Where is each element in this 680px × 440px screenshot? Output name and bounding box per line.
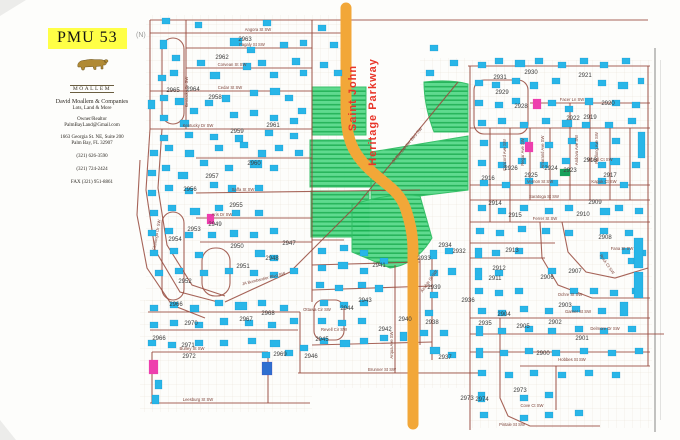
house-marker — [280, 42, 288, 48]
house-marker — [290, 133, 298, 139]
area-number-label: 2972 — [182, 354, 196, 360]
pink-house-marker — [149, 360, 158, 374]
house-marker — [580, 58, 588, 64]
house-marker — [450, 60, 458, 66]
house-marker — [520, 306, 528, 312]
street-label: Ochre St SW — [558, 292, 582, 297]
house-marker — [270, 72, 278, 78]
street-label: Ottawa Cir SW — [303, 307, 331, 312]
house-marker — [515, 288, 523, 294]
house-marker — [478, 62, 486, 68]
house-marker — [268, 322, 276, 328]
house-marker — [565, 106, 573, 112]
house-marker — [168, 342, 176, 348]
street-address: 1663 Georgia St. NE, Suite 200 — [36, 135, 148, 140]
house-marker — [168, 205, 176, 211]
house-marker — [247, 47, 255, 53]
house-marker — [190, 108, 198, 114]
area-number-label: 2935 — [478, 321, 492, 327]
house-marker — [150, 322, 158, 328]
house-marker — [210, 134, 218, 140]
area-number-label: 2953 — [187, 227, 201, 233]
house-marker — [475, 288, 483, 294]
house-marker — [300, 70, 307, 76]
area-number-label: 2925 — [524, 173, 538, 179]
email-address: PalmBayLand@Gmail.com — [36, 123, 148, 128]
pink-house-marker — [533, 99, 541, 109]
house-marker — [542, 118, 550, 124]
house-marker — [380, 335, 388, 341]
house-marker — [318, 265, 326, 271]
house-marker — [492, 82, 500, 88]
house-marker — [338, 320, 346, 326]
house-marker — [235, 135, 243, 142]
house-marker — [250, 232, 258, 238]
house-marker — [358, 282, 366, 288]
area-number-label: 2969 — [273, 352, 287, 358]
house-marker — [512, 78, 520, 84]
street-label: Ferrer St SW — [533, 216, 557, 221]
house-marker — [430, 347, 440, 354]
area-number-label: 2944 — [340, 306, 354, 312]
city-state-zip: Palm Bay, FL 32907 — [36, 141, 148, 146]
street-label: Saffa St SW — [232, 187, 255, 192]
area-number-label: 2957 — [205, 174, 219, 180]
area-number-label: 2964 — [186, 87, 200, 93]
area-number-label: 2937 — [438, 355, 452, 361]
house-marker — [148, 100, 155, 109]
area-number-label: 2942 — [378, 327, 392, 333]
house-marker — [498, 118, 506, 124]
house-marker — [622, 58, 630, 64]
street-label: Aris Dr SW — [212, 212, 233, 217]
area-number-label: 2971 — [181, 343, 195, 349]
street-label: Kentucky Dr SW — [183, 123, 214, 128]
area-number-label: 2917 — [603, 173, 617, 179]
house-marker — [638, 78, 644, 84]
house-marker — [215, 145, 223, 151]
area-number-label: 2900 — [536, 351, 550, 357]
pmu-label: PMU 53 — [48, 28, 127, 49]
house-marker — [628, 118, 636, 124]
house-marker — [318, 318, 326, 324]
parcel-grid — [146, 15, 312, 305]
street-label: Andova Ave SW — [574, 135, 579, 165]
house-marker — [170, 248, 178, 254]
area-number-label: 2932 — [452, 249, 466, 255]
house-marker — [170, 70, 178, 76]
house-marker — [285, 95, 293, 101]
house-marker — [165, 185, 173, 191]
house-marker — [232, 210, 240, 216]
area-number-label: 2901 — [575, 336, 589, 342]
house-marker — [170, 320, 178, 326]
house-marker — [475, 248, 482, 258]
house-marker — [150, 250, 158, 256]
house-marker — [515, 60, 525, 67]
green-highlight-zone — [371, 136, 468, 202]
house-marker — [475, 80, 483, 86]
house-marker — [498, 328, 506, 334]
street-label: Hobbes St SW — [558, 357, 586, 362]
street-label: Pintale St SW — [499, 422, 525, 427]
house-marker — [565, 230, 573, 236]
area-number-label: 2947 — [282, 241, 296, 247]
area-number-label: 2930 — [524, 70, 538, 76]
house-marker — [448, 268, 456, 275]
house-marker — [628, 326, 636, 332]
house-marker — [600, 62, 608, 68]
house-marker — [210, 72, 220, 79]
house-marker — [498, 208, 506, 214]
house-marker — [476, 228, 484, 234]
street-label: Garner St SW — [565, 309, 591, 314]
area-number-label: 2916 — [481, 176, 495, 182]
house-marker — [548, 100, 556, 106]
area-number-label: 2965 — [166, 88, 180, 94]
house-marker — [195, 252, 203, 258]
house-marker — [160, 95, 168, 101]
house-marker — [495, 102, 503, 108]
house-marker — [258, 150, 266, 157]
area-number-label: 2949 — [208, 222, 222, 228]
house-marker — [295, 150, 303, 156]
north-mark: (N) — [136, 32, 146, 39]
house-marker — [530, 370, 538, 376]
street-label: Amarand Ave SW — [540, 135, 545, 168]
house-marker — [625, 230, 633, 236]
area-number-label: 2902 — [548, 320, 562, 326]
street-label: Delmore Dr SW — [590, 326, 619, 331]
area-number-label: 2945 — [315, 337, 329, 343]
area-number-label: 2973 — [513, 388, 527, 394]
house-marker — [360, 338, 368, 344]
house-marker — [575, 410, 583, 416]
house-marker — [178, 172, 188, 179]
house-marker — [250, 110, 258, 116]
house-marker — [200, 160, 208, 166]
house-marker — [220, 340, 228, 346]
house-marker — [478, 205, 486, 211]
house-marker — [300, 345, 308, 351]
house-marker — [605, 122, 613, 128]
street-label: Brunner St SW — [368, 367, 396, 372]
house-marker — [632, 102, 640, 108]
area-number-label: 2934 — [438, 243, 452, 249]
house-marker — [476, 326, 483, 336]
area-number-label: 2967 — [239, 317, 253, 323]
street-label: Cove Ct SW — [520, 403, 543, 408]
phone-number-1: (321) 626-3590 — [36, 154, 148, 159]
house-marker — [545, 142, 553, 148]
street-label: Kapok Ct SW — [591, 179, 616, 184]
house-marker — [340, 340, 350, 347]
street-label: Corvean St SW — [218, 62, 247, 67]
area-number-label: 2941 — [372, 263, 386, 269]
house-marker — [535, 58, 543, 64]
logo-wordmark: MOALLEM — [70, 85, 114, 93]
house-marker — [520, 395, 528, 401]
house-marker — [360, 250, 368, 256]
house-marker — [375, 285, 383, 292]
house-marker — [292, 58, 300, 65]
parkway-name-label: Heritage Parkway — [367, 58, 379, 166]
house-marker — [255, 210, 263, 216]
area-number-label: 2958 — [208, 95, 222, 101]
house-marker — [475, 100, 483, 106]
house-marker — [502, 182, 510, 188]
house-marker — [478, 370, 486, 376]
house-marker — [495, 58, 503, 64]
area-number-label: 2950 — [230, 244, 244, 250]
area-number-label: 2924 — [544, 166, 558, 172]
house-marker — [612, 372, 620, 378]
house-marker — [290, 318, 298, 324]
house-marker — [155, 270, 163, 276]
house-marker — [270, 165, 278, 171]
area-number-label: 2960 — [247, 161, 261, 167]
house-marker — [600, 208, 610, 215]
house-marker — [632, 162, 640, 168]
area-number-label: 2926 — [504, 166, 518, 172]
house-marker — [290, 268, 298, 274]
area-number-label: 2973 — [460, 396, 474, 402]
house-marker — [548, 328, 556, 334]
house-marker — [210, 182, 218, 188]
house-marker — [162, 18, 170, 24]
house-marker — [478, 160, 486, 166]
area-number-label: 2940 — [398, 317, 412, 323]
house-marker — [262, 352, 270, 358]
company-name: David Moallem & Companies — [36, 99, 148, 105]
house-marker — [360, 268, 368, 274]
house-marker — [150, 150, 158, 156]
house-marker — [475, 268, 482, 280]
house-marker — [558, 372, 566, 378]
area-number-label: 2951 — [236, 264, 250, 270]
lion-icon — [72, 56, 112, 72]
house-marker — [545, 392, 553, 398]
area-number-label: 2910 — [576, 212, 590, 218]
area-number-label: 2956 — [183, 187, 197, 193]
street-label: Arqua Ave SW — [389, 331, 394, 358]
phone-number-2: (321) 724-2424 — [36, 167, 148, 172]
house-marker — [195, 22, 202, 28]
house-marker — [338, 262, 348, 269]
area-number-label: 2968 — [261, 311, 275, 317]
area-number-label: 2913 — [505, 248, 519, 254]
house-marker — [230, 112, 238, 118]
area-number-label: 2936 — [461, 298, 475, 304]
area-number-label: 2961 — [266, 123, 280, 129]
area-number-label: 2938 — [425, 320, 439, 326]
house-marker — [185, 150, 194, 157]
area-number-label: 2954 — [168, 237, 182, 243]
house-marker — [160, 115, 168, 121]
house-marker — [230, 230, 238, 237]
area-number-label: 2970 — [184, 321, 198, 327]
house-marker — [430, 292, 438, 298]
area-number-label: 2923 — [563, 168, 577, 174]
house-marker — [496, 230, 504, 236]
house-marker — [358, 318, 366, 324]
house-marker — [248, 338, 256, 344]
house-marker — [634, 272, 643, 298]
house-marker — [525, 348, 533, 354]
house-marker — [552, 78, 560, 84]
house-marker — [298, 108, 306, 114]
house-marker — [240, 142, 248, 148]
area-number-label: 2959 — [230, 129, 244, 135]
house-marker — [148, 170, 156, 176]
house-marker — [585, 98, 593, 105]
house-marker — [300, 40, 307, 46]
house-marker — [598, 162, 606, 168]
house-marker — [150, 210, 158, 216]
house-marker — [585, 370, 593, 376]
house-marker — [562, 158, 570, 164]
house-marker — [275, 145, 283, 151]
house-marker — [545, 412, 553, 418]
scanned-parcel-map-page: Angora St SWFagaly St SWCorvean St SWCed… — [0, 0, 680, 440]
house-marker — [258, 60, 266, 66]
house-marker — [476, 348, 483, 358]
purple-house-marker — [262, 362, 272, 375]
area-number-label: 2966 — [169, 302, 183, 308]
house-marker — [635, 348, 643, 354]
house-marker — [255, 185, 263, 191]
house-marker — [620, 302, 628, 316]
area-number-label: 2903 — [558, 303, 572, 309]
moallem-logo: MOALLEM — [36, 56, 148, 95]
area-number-label: 2931 — [493, 75, 507, 81]
realtor-info-panel: PMU 53 (N) MOALLEM David Moallem & Compa… — [36, 28, 148, 185]
house-marker — [270, 88, 280, 95]
street-label: Fana St SW — [611, 246, 634, 251]
house-marker — [235, 302, 247, 310]
house-marker — [425, 310, 433, 316]
house-marker — [270, 228, 278, 234]
house-marker — [430, 250, 437, 259]
house-marker — [518, 226, 526, 232]
house-marker — [316, 282, 324, 288]
house-marker — [175, 268, 183, 274]
company-tagline: Lots, Land & More — [36, 106, 148, 111]
house-marker — [545, 308, 553, 314]
house-marker — [440, 330, 448, 336]
area-number-label: 2943 — [358, 298, 372, 304]
house-marker — [320, 300, 328, 306]
house-marker — [185, 132, 193, 138]
house-marker — [400, 332, 407, 341]
house-marker — [480, 412, 488, 418]
area-number-label: 2912 — [492, 266, 506, 272]
house-marker — [222, 95, 230, 102]
house-marker — [575, 326, 583, 332]
house-marker — [600, 228, 608, 234]
house-marker — [250, 90, 258, 96]
area-number-label: 2911 — [489, 276, 503, 282]
area-number-label: 2966 — [152, 336, 166, 342]
area-number-label: 2921 — [578, 73, 592, 79]
house-marker — [172, 55, 180, 61]
house-marker — [255, 250, 265, 257]
area-number-label: 2946 — [304, 354, 318, 360]
area-number-label: 2904 — [497, 312, 511, 318]
street-label: Angora St SW — [245, 27, 272, 32]
house-marker — [478, 120, 486, 126]
house-marker — [598, 80, 606, 86]
house-marker — [565, 205, 573, 211]
area-number-label: 2920 — [601, 101, 615, 107]
house-marker — [635, 208, 643, 214]
house-marker — [334, 70, 342, 76]
parkway-name-label: Saint John — [347, 65, 359, 131]
area-number-label: 2905 — [516, 324, 530, 330]
area-number-label: 2907 — [568, 269, 582, 275]
house-marker — [158, 75, 166, 81]
house-marker — [598, 308, 606, 314]
house-marker — [225, 268, 233, 274]
house-marker — [520, 122, 528, 128]
house-marker — [258, 300, 266, 306]
house-marker — [190, 208, 200, 215]
house-marker — [162, 165, 170, 171]
area-number-label: 2918 — [583, 158, 597, 164]
house-marker — [290, 118, 298, 124]
area-number-label: 2922 — [566, 116, 580, 122]
area-number-label: 2919 — [583, 115, 597, 121]
house-marker — [608, 350, 616, 356]
house-marker — [318, 248, 326, 254]
house-marker — [265, 130, 273, 136]
house-marker — [615, 205, 623, 211]
house-marker — [638, 132, 645, 158]
house-marker — [165, 145, 173, 151]
house-marker — [558, 62, 566, 68]
house-marker — [335, 285, 343, 291]
area-number-label: 2909 — [588, 200, 602, 206]
house-marker — [250, 270, 258, 276]
house-marker — [618, 82, 628, 89]
house-marker — [480, 140, 488, 146]
house-marker — [175, 98, 184, 105]
house-marker — [152, 395, 159, 404]
house-marker — [215, 205, 223, 211]
house-marker — [150, 305, 158, 311]
house-marker — [197, 60, 205, 66]
area-number-label: 2952 — [178, 279, 192, 285]
street-label: Regar Ave SW — [520, 138, 525, 165]
house-marker — [620, 182, 628, 188]
house-marker — [590, 288, 598, 294]
house-marker — [220, 318, 228, 325]
area-number-label: 2906 — [540, 275, 554, 281]
house-marker — [552, 350, 560, 356]
house-marker — [280, 305, 288, 311]
house-marker — [200, 270, 208, 276]
street-label: Cedar St SW — [218, 85, 242, 90]
house-marker — [225, 165, 233, 171]
house-marker — [190, 305, 199, 312]
area-number-label: 2914 — [488, 201, 502, 207]
house-marker — [478, 308, 486, 314]
area-number-label: 2929 — [495, 90, 509, 96]
house-marker — [320, 62, 328, 68]
house-marker — [330, 42, 338, 48]
house-marker — [148, 190, 156, 196]
house-marker — [155, 380, 162, 389]
